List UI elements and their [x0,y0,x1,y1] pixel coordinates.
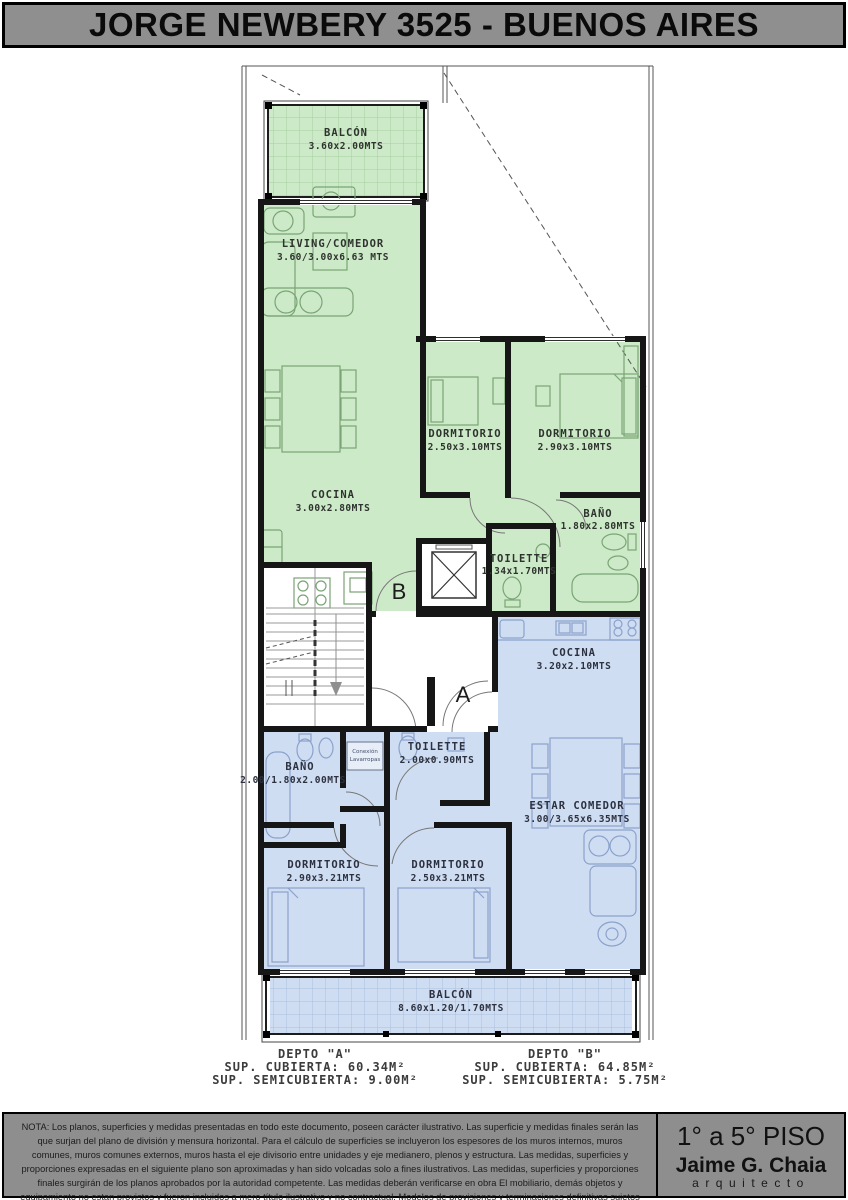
floorplan-drawing: Conexión Lavarropas BALCÓN 3.60x2.00MTS … [0,46,848,1046]
dims-bano-a: 2.00/1.80x2.00MTS [240,775,346,786]
dims-cocina-b: 3.00x2.80MTS [296,503,371,514]
label-estar-a: ESTAR COMEDOR [529,800,624,812]
label-bano-b: BAÑO [583,507,612,520]
footer-bar: NOTA: Los planos, superficies y medidas … [2,1112,846,1198]
legal-note: NOTA: Los planos, superficies y medidas … [4,1114,656,1196]
dims-balcon-a: 8.60x1.20/1.70MTS [398,1003,504,1014]
summary-depto-a: DEPTO "A" SUP. CUBIERTA: 60.34M² SUP. SE… [200,1048,430,1087]
label-cocina-b: COCINA [311,489,355,501]
dims-cocina-a: 3.20x2.10MTS [537,661,612,672]
label-dorm2-b: DORMITORIO [538,428,611,440]
unit-a-tag: A [456,682,471,707]
unit-b-tag: B [392,579,407,604]
dims-living-b: 3.60/3.00x6.63 MTS [277,252,389,263]
label-toilette-a: TOILETTE [408,741,467,753]
page-title: JORGE NEWBERY 3525 - BUENOS AIRES [89,6,759,44]
dims-toilette-b: 1.34x1.70MTS [482,566,557,577]
dims-dorm1-a: 2.90x3.21MTS [287,873,362,884]
dims-dorm2-a: 2.50x3.21MTS [411,873,486,884]
summary-depto-b: DEPTO "B" SUP. CUBIERTA: 64.85M² SUP. SE… [450,1048,680,1087]
label-toilette-b: TOILETTE [490,553,549,565]
label-balcon-b: BALCÓN [324,126,368,139]
floor-range: 1° a 5° PISO [677,1121,825,1152]
label-bano-a: BAÑO [285,760,314,773]
architect-block: 1° a 5° PISO Jaime G. Chaia arquitecto [656,1114,844,1196]
label-dorm1-b: DORMITORIO [428,428,501,440]
dims-toilette-a: 2.00x0.90MTS [400,755,475,766]
label-dorm1-a: DORMITORIO [287,859,360,871]
dims-bano-b: 1.80x2.80MTS [561,521,636,532]
elevator [432,545,476,598]
label-cocina-a: COCINA [552,647,596,659]
label-living-b: LIVING/COMEDOR [282,238,385,250]
architect-title: arquitecto [692,1176,810,1190]
label-dorm2-a: DORMITORIO [411,859,484,871]
title-bar: JORGE NEWBERY 3525 - BUENOS AIRES [2,2,846,48]
laundry-label-line1: Conexión [352,748,378,755]
laundry-label-line2: Lavarropas [350,757,381,763]
floorplan-sheet: JORGE NEWBERY 3525 - BUENOS AIRES [0,0,848,1200]
summary-depto-b-semicubierta: SUP. SEMICUBIERTA: 5.75M² [450,1074,680,1087]
dims-dorm1-b: 2.50x3.10MTS [428,442,503,453]
dims-balcon-b: 3.60x2.00MTS [309,141,384,152]
laundry-connection-box: Conexión Lavarropas [347,742,383,770]
dims-estar-a: 3.00/3.65x6.35MTS [524,814,630,825]
label-balcon-a: BALCÓN [429,988,473,1001]
architect-name: Jaime G. Chaia [676,1154,827,1178]
dims-dorm2-b: 2.90x3.10MTS [538,442,613,453]
summary-depto-a-semicubierta: SUP. SEMICUBIERTA: 9.00M² [200,1074,430,1087]
